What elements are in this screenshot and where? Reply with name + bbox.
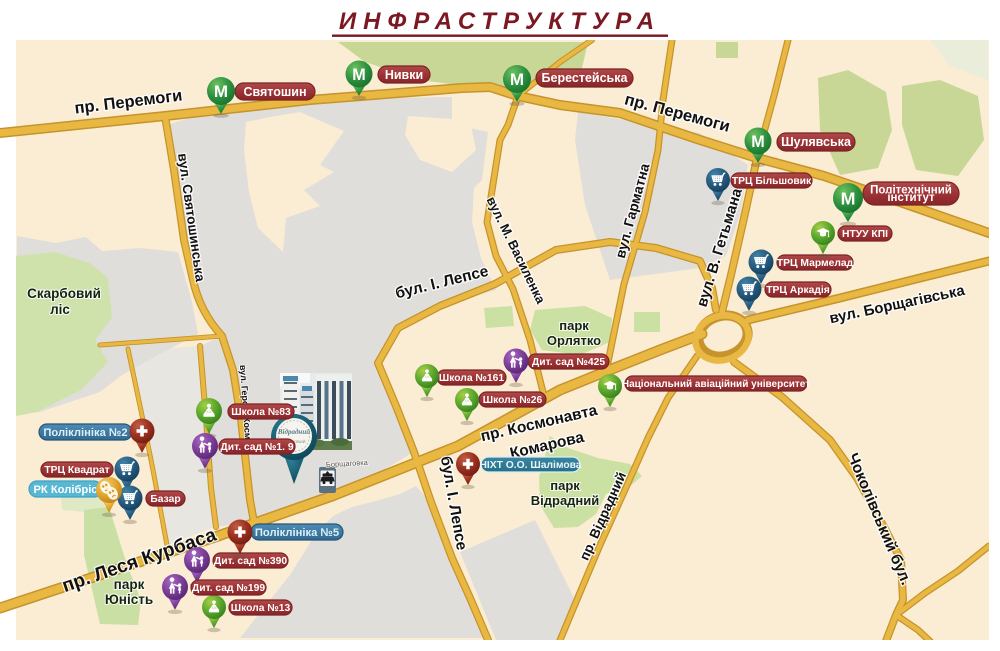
svg-text:Базар: Базар [150, 494, 180, 505]
svg-text:Скарбовий: Скарбовий [27, 286, 101, 301]
svg-text:НТУУ КПІ: НТУУ КПІ [842, 229, 888, 240]
svg-text:Святошин: Святошин [243, 85, 306, 99]
svg-text:парк: парк [114, 577, 145, 592]
svg-text:ТРЦ Квадрат: ТРЦ Квадрат [44, 465, 109, 476]
svg-text:Дит. сад №390: Дит. сад №390 [214, 556, 287, 567]
svg-text:Школа №13: Школа №13 [231, 603, 291, 614]
svg-text:Дит. сад №199: Дит. сад №199 [192, 583, 265, 594]
svg-text:ТРЦ Мармелад: ТРЦ Мармелад [777, 258, 854, 269]
svg-text:інститут: інститут [887, 192, 935, 204]
svg-text:Нивки: Нивки [385, 68, 423, 82]
svg-text:Національний авіаційний універ: Національний авіаційний університет [622, 379, 810, 390]
svg-text:Берестейська: Берестейська [542, 71, 629, 85]
svg-text:ИНФРАСТРУКТУРА: ИНФРАСТРУКТУРА [339, 8, 661, 35]
svg-text:Поліклініка №5: Поліклініка №5 [255, 527, 339, 539]
svg-text:Поліклініка №2: Поліклініка №2 [43, 427, 127, 439]
svg-text:Дит. сад №425: Дит. сад №425 [532, 357, 605, 368]
svg-text:РК Колібріс: РК Колібріс [33, 484, 97, 496]
svg-text:Дит. сад №1. 9: Дит. сад №1. 9 [220, 442, 293, 453]
svg-text:ТРЦ Аркадія: ТРЦ Аркадія [766, 285, 830, 296]
svg-text:Школа №83: Школа №83 [231, 407, 291, 418]
svg-text:Орлятко: Орлятко [547, 333, 601, 348]
svg-text:Шулявська: Шулявська [781, 135, 852, 149]
svg-text:Відрадний: Відрадний [531, 493, 600, 508]
svg-text:НІХТ О.О. Шалімова: НІХТ О.О. Шалімова [479, 460, 581, 471]
svg-text:Школа №26: Школа №26 [483, 395, 543, 406]
svg-text:ТРЦ Більшовик: ТРЦ Більшовик [732, 176, 812, 187]
svg-text:Відрадний: Відрадний [277, 428, 310, 436]
svg-text:Юність: Юність [105, 592, 153, 607]
svg-text:Школа №161: Школа №161 [439, 373, 504, 384]
svg-text:ліс: ліс [50, 302, 70, 317]
svg-text:парк: парк [550, 478, 580, 493]
svg-text:парк: парк [559, 318, 589, 333]
